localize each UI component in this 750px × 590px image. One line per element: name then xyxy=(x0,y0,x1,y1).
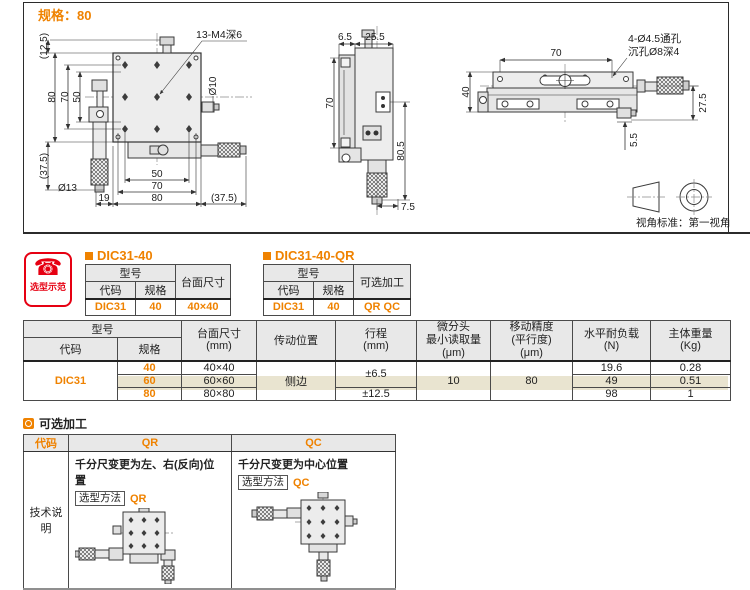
cell-spec: 80 xyxy=(118,387,182,400)
qc-description: 千分尺变更为中心位置 xyxy=(238,456,389,472)
selection-method-label: 选型方法 xyxy=(75,491,125,506)
cell-options: QR QC xyxy=(354,299,411,315)
technical-drawing: 13-M4深6 (12.5) 80 70 50 (37.5) 50 70 80 … xyxy=(0,0,750,233)
spec-label: 规格：80 xyxy=(38,5,91,24)
cell-code: DIC31 xyxy=(264,299,314,315)
option-qc-cell: 千分尺变更为中心位置 选型方法 QC xyxy=(232,452,396,590)
selection-example-badge: ☎ 选型示范 xyxy=(24,252,72,307)
main-spec-table: 型号 台面尺寸 (mm) 传动位置 行程 (mm) 微分头 最小读取量 (μm)… xyxy=(23,320,731,401)
cell-load: 19.6 xyxy=(573,361,651,375)
cell-drive: 侧边 xyxy=(257,361,336,401)
col-model: 型号 xyxy=(86,265,176,282)
dim-front-dia10: Ø10 xyxy=(208,76,219,95)
cell-reading: 10 xyxy=(417,361,491,401)
dim-front-b50: 50 xyxy=(151,169,163,180)
col-spec: 规格 xyxy=(314,282,354,300)
col-weight: 主体重量 (Kg) xyxy=(651,321,731,361)
option-qr-cell: 千分尺变更为左、右(反向)位置 选型方法 QR xyxy=(69,452,232,590)
cell-load: 49 xyxy=(573,374,651,387)
col-min-reading: 微分头 最小读取量 (μm) xyxy=(417,321,491,361)
col-drive-position: 传动位置 xyxy=(257,321,336,361)
qr-code: QR xyxy=(130,493,147,505)
dim-front-v80: 80 xyxy=(47,91,58,103)
cell-size: 40×40 xyxy=(176,299,231,315)
qr-description: 千分尺变更为左、右(反向)位置 xyxy=(75,456,225,488)
dim-side-70: 70 xyxy=(325,97,336,109)
cell-spec: 40 xyxy=(136,299,176,315)
selection-example-label: 选型示范 xyxy=(30,280,66,293)
dim-side-255: 25.5 xyxy=(365,32,385,43)
dim-front-b70: 70 xyxy=(151,181,163,192)
option-marker-icon xyxy=(23,418,34,429)
dim-front-v50: 50 xyxy=(72,91,83,103)
dim-top-70: 70 xyxy=(550,48,562,59)
col-spec: 规格 xyxy=(118,338,182,361)
dim-top-275: 27.5 xyxy=(698,93,709,113)
col-precision: 移动精度 (平行度) (μm) xyxy=(491,321,573,361)
col-code: 代码 xyxy=(86,282,136,300)
cell-weight: 0.28 xyxy=(651,361,731,375)
cell-size: 40×40 xyxy=(182,361,257,375)
cell-spec: 40 xyxy=(314,299,354,315)
note-hole-2: 沉孔Ø8深4 xyxy=(628,45,680,58)
cell-precision: 80 xyxy=(491,361,573,401)
bullet-square-icon xyxy=(85,252,93,260)
qc-stage-drawing xyxy=(239,492,389,584)
cell-weight: 0.51 xyxy=(651,374,731,387)
selection-method-label: 选型方法 xyxy=(238,475,288,490)
col-qr: QR xyxy=(69,435,232,452)
cell-code: DIC31 xyxy=(24,361,118,401)
col-size: 台面尺寸 (mm) xyxy=(182,321,257,361)
bullet-square-icon xyxy=(263,252,271,260)
dim-side-65: 6.5 xyxy=(338,32,352,43)
side-view: 6.5 25.5 70 80.5 7.5 xyxy=(325,26,415,215)
cell-size: 60×60 xyxy=(182,374,257,387)
table-row: DIC31 40 40×40 xyxy=(86,299,231,315)
qr-stage-drawing xyxy=(75,508,225,584)
cell-spec: 40 xyxy=(118,361,182,375)
dim-front-v70: 70 xyxy=(60,91,71,103)
dim-front-b80: 80 xyxy=(151,193,163,204)
sample-table-b-title: DIC31-40-QR xyxy=(263,248,354,263)
cell-size: 80×80 xyxy=(182,387,257,400)
dim-front-b375: (37.5) xyxy=(211,193,237,204)
col-qc: QC xyxy=(232,435,396,452)
sample-table-a: 型号 台面尺寸 代码 规格 DIC31 40 40×40 xyxy=(85,264,231,316)
dim-side-805: 80.5 xyxy=(396,141,407,161)
col-code: 代码 xyxy=(24,338,118,361)
phone-icon: ☎ xyxy=(34,254,63,280)
qc-code: QC xyxy=(293,477,310,489)
top-view: 70 4-Ø4.5通孔 沉孔Ø8深4 40 27.5 5.5 xyxy=(461,32,709,150)
dim-top-55: 5.5 xyxy=(629,133,640,147)
col-load: 水平耐负载 (N) xyxy=(573,321,651,361)
first-angle-symbol: 视角标准：第一视角 xyxy=(627,179,731,229)
col-spec: 规格 xyxy=(136,282,176,300)
note-hole-1: 4-Ø4.5通孔 xyxy=(628,32,682,45)
col-model: 型号 xyxy=(264,265,354,282)
front-view: 13-M4深6 (12.5) 80 70 50 (37.5) 50 70 80 … xyxy=(39,29,252,207)
note-thread: 13-M4深6 xyxy=(196,29,242,41)
col-model: 型号 xyxy=(24,321,182,338)
table-row-40: DIC31 40 40×40 侧边 ±6.5 10 80 19.6 0.28 xyxy=(24,361,731,375)
dim-front-125: (12.5) xyxy=(39,33,50,59)
main-spec-table-wrap: 型号 台面尺寸 (mm) 传动位置 行程 (mm) 微分头 最小读取量 (μm)… xyxy=(23,320,730,401)
row-label-tech-notes: 技术说明 xyxy=(24,452,69,590)
col-options: 可选加工 xyxy=(354,265,411,300)
col-code: 代码 xyxy=(264,282,314,300)
col-travel: 行程 (mm) xyxy=(336,321,417,361)
projection-caption: 视角标准：第一视角 xyxy=(636,216,731,229)
dim-front-dia13: Ø13 xyxy=(58,183,77,194)
cell-travel: ±12.5 xyxy=(336,387,417,400)
cell-weight: 1 xyxy=(651,387,731,400)
sample-table-a-title: DIC31-40 xyxy=(85,248,153,263)
cell-load: 98 xyxy=(573,387,651,400)
options-section-title: 可选加工 xyxy=(23,415,87,432)
cell-spec: 60 xyxy=(118,374,182,387)
dim-side-75: 7.5 xyxy=(401,202,415,213)
dim-top-40: 40 xyxy=(461,86,472,98)
dim-front-v375: (37.5) xyxy=(39,153,50,179)
dim-front-b19: 19 xyxy=(98,193,110,204)
cell-code: DIC31 xyxy=(86,299,136,315)
catalog-page: { "accent": "#ef8200", "spec_header": "规… xyxy=(0,0,750,590)
cell-travel: ±6.5 xyxy=(336,361,417,388)
table-row-80: 80 80×80 ±12.5 98 1 xyxy=(24,387,731,400)
options-table: 代码 QR QC 技术说明 千分尺变更为左、右(反向)位置 选型方法 QR xyxy=(23,434,396,590)
sample-table-b: 型号 可选加工 代码 规格 DIC31 40 QR QC xyxy=(263,264,411,316)
col-size: 台面尺寸 xyxy=(176,265,231,300)
table-row: DIC31 40 QR QC xyxy=(264,299,411,315)
col-code: 代码 xyxy=(24,435,69,452)
